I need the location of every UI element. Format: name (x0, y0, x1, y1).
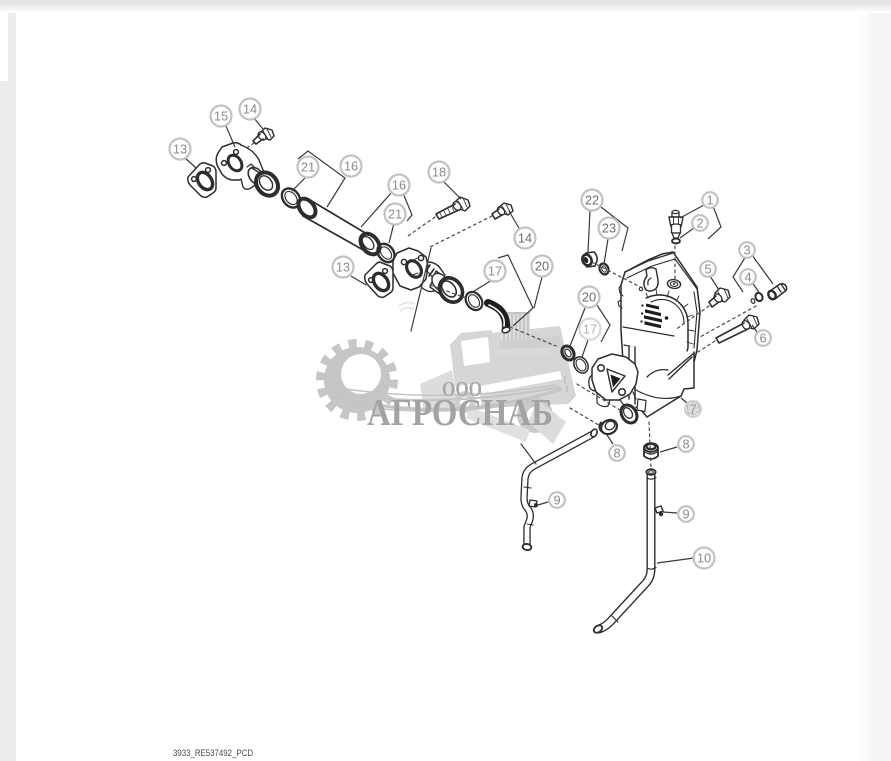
svg-text:21: 21 (301, 160, 315, 175)
svg-text:9: 9 (553, 493, 560, 508)
svg-text:17: 17 (583, 322, 597, 337)
svg-text:8: 8 (682, 437, 689, 452)
svg-text:16: 16 (344, 159, 358, 174)
svg-text:23: 23 (602, 221, 616, 236)
svg-text:16: 16 (392, 178, 406, 193)
svg-text:9: 9 (682, 507, 689, 522)
svg-text:14: 14 (243, 102, 257, 117)
svg-text:15: 15 (214, 109, 228, 124)
svg-text:14: 14 (518, 231, 532, 246)
svg-text:21: 21 (388, 207, 402, 222)
svg-text:13: 13 (336, 260, 350, 275)
svg-text:6: 6 (759, 331, 766, 346)
svg-text:8: 8 (613, 446, 620, 461)
svg-text:5: 5 (704, 262, 711, 277)
svg-text:13: 13 (173, 142, 187, 157)
svg-text:3: 3 (743, 243, 750, 258)
svg-text:22: 22 (585, 193, 599, 208)
svg-text:20: 20 (582, 290, 596, 305)
svg-text:7: 7 (689, 402, 696, 417)
svg-text:18: 18 (432, 165, 446, 180)
svg-text:АГРОСНАБ: АГРОСНАБ (367, 392, 553, 434)
svg-text:3933_RE537492_PCD: 3933_RE537492_PCD (173, 748, 253, 758)
svg-text:1: 1 (706, 193, 713, 208)
svg-text:20: 20 (535, 259, 549, 274)
svg-text:2: 2 (696, 216, 703, 231)
svg-text:4: 4 (744, 270, 751, 285)
svg-text:10: 10 (697, 551, 711, 566)
svg-text:17: 17 (488, 264, 502, 279)
